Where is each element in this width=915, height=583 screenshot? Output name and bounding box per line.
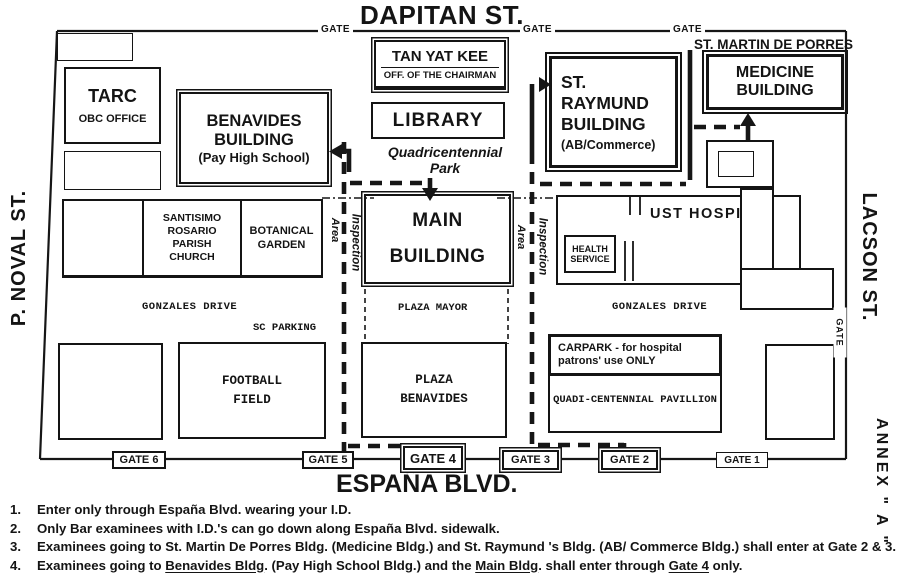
st-raymund-line1: ST. (561, 72, 586, 93)
unlabeled-building-topleft (57, 33, 133, 61)
santisimo-rosario-parish-church: SANTISIMO ROSARIO PARISH CHURCH (144, 201, 242, 275)
church-line2: ROSARIO (167, 225, 216, 238)
plaza-mayor-label: PLAZA MAYOR (398, 302, 467, 314)
church-line4: CHURCH (169, 251, 215, 264)
botanical-line2: GARDEN (258, 238, 306, 252)
benavides-line1: BENAVIDES (206, 112, 301, 131)
unlabeled-church-wing (64, 201, 144, 275)
benavides-building: BENAVIDES BUILDING (Pay High School) (179, 92, 329, 184)
carpark-line1: CARPARK - for hospital (558, 342, 719, 355)
church-line1: SANTISIMO (163, 212, 221, 225)
unlabeled-building-right-low (740, 268, 834, 310)
church-line3: PARISH (173, 238, 212, 251)
st-raymund-line2: RAYMUND (561, 93, 649, 114)
library-building: LIBRARY (371, 102, 505, 139)
football-line2: FIELD (233, 391, 271, 410)
inspection-label-west: Inspection (350, 200, 363, 286)
street-p-noval: P. NOVAL ST. (6, 183, 32, 333)
arrow-to-benavides (329, 144, 342, 159)
medicine-building: MEDICINE BUILDING (706, 54, 844, 110)
botanical-line1: BOTANICAL (250, 224, 314, 238)
st-raymund-line3: BUILDING (561, 114, 646, 135)
street-espana: ESPAÑA BLVD. (336, 470, 506, 499)
unlabeled-building-left (64, 151, 161, 190)
gonzales-drive-west-label: GONZALES DRIVE (142, 301, 237, 313)
unlabeled-building-southeast (765, 344, 835, 440)
dapitan-gate-1: GATE (318, 24, 353, 35)
quadri-line2: Park (375, 160, 515, 176)
gate-1: GATE 1 (716, 452, 768, 468)
church-complex: SANTISIMO ROSARIO PARISH CHURCH BOTANICA… (62, 199, 323, 278)
st-martin-de-porres-label: ST. MARTIN DE PORRES (694, 37, 853, 52)
quadricentennial-park-label: Quadricentennial Park (375, 144, 515, 176)
plaza-benavides: PLAZA BENAVIDES (361, 342, 507, 438)
gate-6: GATE 6 (112, 451, 166, 469)
carpark-section: CARPARK - for hospital patrons' use ONLY (548, 334, 722, 376)
notes-list: 1.Enter only through España Blvd. wearin… (10, 502, 905, 573)
quadri-line1: Quadricentennial (375, 144, 515, 160)
gate-2: GATE 2 (601, 450, 658, 470)
tarc-building: TARC OBC OFFICE (64, 67, 161, 144)
benavides-line3: (Pay High School) (198, 150, 309, 165)
tarc-label: TARC (88, 86, 137, 107)
gate-5: GATE 5 (302, 451, 354, 469)
unlabeled-building-right-top (706, 140, 774, 188)
quadricentennial-pavilion-label: QUADI-CENTENNIAL PAVILLION (550, 394, 720, 406)
unlabeled-building-right-mid (740, 188, 774, 270)
main-line2: BUILDING (390, 246, 486, 268)
benavides-line2: BUILDING (214, 131, 294, 150)
gate-4: GATE 4 (403, 446, 463, 470)
carpark-line2: patrons' use ONLY (558, 355, 719, 368)
note-item: 3.Examinees going to St. Martin De Porre… (10, 539, 905, 554)
side-gate-label: GATE (834, 308, 847, 358)
football-line1: FOOTBALL (222, 372, 282, 391)
main-line1: MAIN (412, 210, 463, 232)
dapitan-gate-2: GATE (520, 24, 555, 35)
medicine-line2: BUILDING (736, 82, 813, 100)
health-line2: SERVICE (570, 254, 609, 264)
plaza-benavides-line2: BENAVIDES (400, 390, 468, 409)
medicine-line1: MEDICINE (736, 64, 814, 82)
street-lacson: LACSON ST. (856, 187, 882, 327)
health-line1: HEALTH (572, 244, 608, 254)
note-item: 4.Examinees going to Benavides Bldg. (Pa… (10, 558, 905, 573)
area-label-east: Area (515, 217, 527, 257)
obc-office-label: OBC OFFICE (79, 113, 147, 125)
gonzales-drive-east-label: GONZALES DRIVE (612, 301, 707, 313)
football-field: FOOTBALL FIELD (178, 342, 326, 439)
inspection-label-east: Inspection (537, 204, 550, 290)
dapitan-gate-3: GATE (670, 24, 705, 35)
main-building: MAIN BUILDING (364, 194, 511, 284)
note-item: 1.Enter only through España Blvd. wearin… (10, 502, 905, 517)
st-raymund-line4: (AB/Commerce) (561, 138, 655, 152)
tan-yat-kee-building: TAN YAT KEE OFF. OF THE CHAIRMAN (374, 40, 506, 90)
plaza-benavides-line1: PLAZA (415, 371, 453, 390)
st-raymund-building: ST. RAYMUND BUILDING (AB/Commerce) (549, 56, 678, 168)
gate-3: GATE 3 (502, 450, 559, 470)
sc-parking-label: SC PARKING (253, 322, 316, 334)
unlabeled-field-west (58, 343, 163, 440)
street-dapitan: DAPITAN ST. (360, 0, 520, 31)
unlabeled-inner-structure (718, 151, 754, 177)
note-item: 2.Only Bar examinees with I.D.'s can go … (10, 521, 905, 536)
area-label-west: Area (329, 210, 341, 250)
tan-yat-kee-line2: OFF. OF THE CHAIRMAN (381, 67, 499, 81)
health-service: HEALTH SERVICE (564, 235, 616, 273)
tan-yat-kee-line1: TAN YAT KEE (376, 48, 504, 65)
campus-map: DAPITAN ST. ESPAÑA BLVD. P. NOVAL ST. LA… (0, 0, 915, 583)
botanical-garden: BOTANICAL GARDEN (242, 201, 321, 275)
carpark-pavilion-complex: CARPARK - for hospital patrons' use ONLY… (548, 334, 722, 433)
arrow-to-medicine (740, 113, 756, 126)
library-label: LIBRARY (393, 110, 484, 132)
